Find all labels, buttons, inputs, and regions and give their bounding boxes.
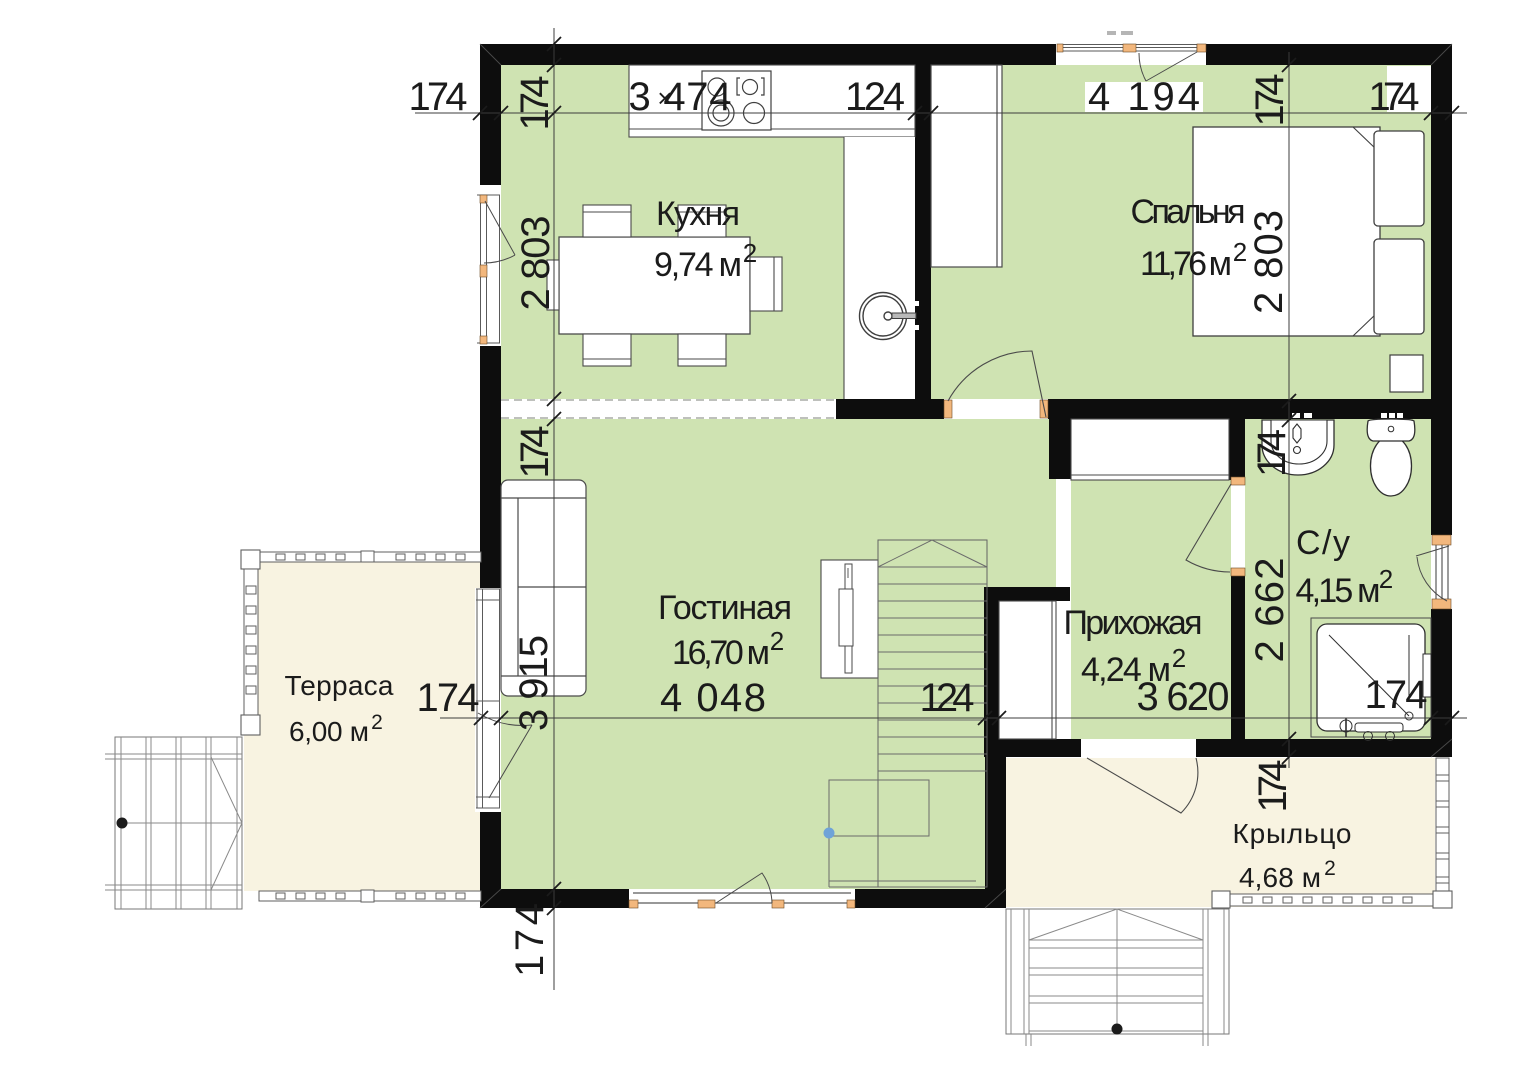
svg-text:11,76 м: 11,76 м	[1140, 245, 1232, 283]
svg-text:Терраса: Терраса	[285, 670, 394, 701]
svg-text:174: 174	[1365, 673, 1428, 717]
svg-text:124: 124	[920, 676, 975, 720]
svg-text:4,68 м: 4,68 м	[1239, 862, 1321, 893]
svg-text:2: 2	[770, 626, 784, 656]
svg-text:×: ×	[657, 83, 672, 113]
svg-text:4 194: 4 194	[1088, 75, 1200, 119]
svg-text:2: 2	[1233, 237, 1247, 267]
svg-text:2: 2	[1172, 643, 1186, 673]
svg-text:174: 174	[513, 426, 557, 479]
svg-text:4,24 м: 4,24 м	[1081, 651, 1171, 689]
svg-text:2: 2	[1379, 564, 1393, 594]
svg-text:6,00 м: 6,00 м	[289, 716, 369, 747]
svg-text:Кухня: Кухня	[656, 195, 740, 233]
svg-text:2: 2	[371, 711, 383, 734]
svg-text:3 474: 3 474	[629, 75, 732, 119]
svg-text:С/у: С/у	[1296, 524, 1350, 562]
svg-text:2 803: 2 803	[1247, 210, 1291, 314]
svg-text:2 662: 2 662	[1248, 558, 1292, 663]
svg-text:2: 2	[1324, 857, 1336, 880]
svg-text:Крыльцо: Крыльцо	[1233, 818, 1352, 849]
svg-text:174: 174	[1248, 74, 1292, 127]
svg-text:Гостиная: Гостиная	[658, 589, 792, 627]
svg-text:174: 174	[409, 75, 468, 119]
svg-text:174: 174	[508, 903, 552, 977]
svg-text:174: 174	[1251, 760, 1295, 813]
svg-text:3 915: 3 915	[512, 635, 556, 731]
svg-text:Прихожая: Прихожая	[1064, 604, 1203, 642]
svg-text:174: 174	[1250, 429, 1294, 477]
svg-text:16,70 м: 16,70 м	[672, 634, 770, 672]
svg-text:4,15 м: 4,15 м	[1296, 572, 1381, 610]
svg-text:2 803: 2 803	[514, 216, 558, 311]
svg-text:124: 124	[845, 75, 905, 119]
svg-text:9,74 м: 9,74 м	[654, 246, 742, 284]
svg-text:174: 174	[1369, 75, 1420, 119]
svg-text:2: 2	[743, 238, 757, 268]
svg-text:174: 174	[513, 76, 557, 131]
svg-text:174: 174	[417, 676, 480, 720]
svg-text:Спальня: Спальня	[1131, 193, 1246, 231]
svg-text:4 048: 4 048	[660, 676, 766, 720]
